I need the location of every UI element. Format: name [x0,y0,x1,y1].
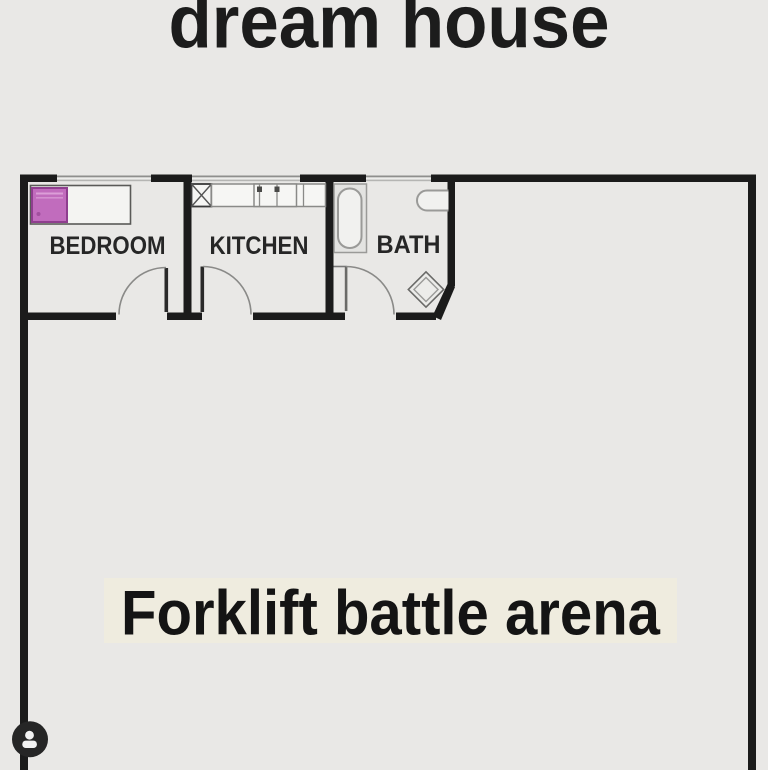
svg-text:Forklift battle arena: Forklift battle arena [121,579,661,649]
svg-text:BEDROOM: BEDROOM [50,232,166,260]
svg-text:dream house: dream house [169,0,610,64]
svg-text:KITCHEN: KITCHEN [210,232,309,260]
svg-text:BATH: BATH [377,231,441,259]
